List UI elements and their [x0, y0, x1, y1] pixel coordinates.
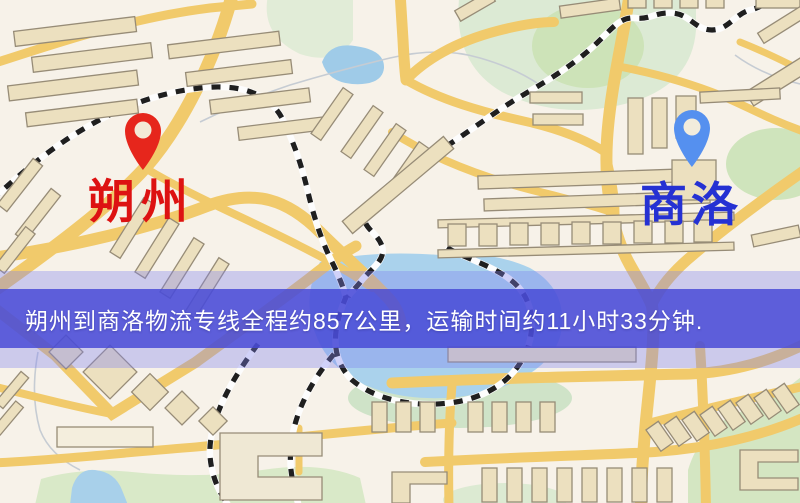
map-pin-icon	[119, 107, 167, 171]
origin-marker-pin[interactable]	[119, 107, 167, 171]
map-pin-icon	[668, 104, 716, 168]
route-banner-text: 朔州到商洛物流专线全程约857公里，运输时间约11小时33分钟.	[0, 302, 703, 336]
destination-city-label: 商洛	[640, 181, 742, 228]
map-canvas[interactable]	[0, 0, 800, 503]
route-banner: 朔州到商洛物流专线全程约857公里，运输时间约11小时33分钟.	[0, 289, 800, 348]
origin-city-label: 朔州	[88, 178, 194, 225]
destination-marker-pin[interactable]	[668, 104, 716, 168]
map-screenshot: 朔州到商洛物流专线全程约857公里，运输时间约11小时33分钟. 朔州 商洛	[0, 0, 800, 503]
